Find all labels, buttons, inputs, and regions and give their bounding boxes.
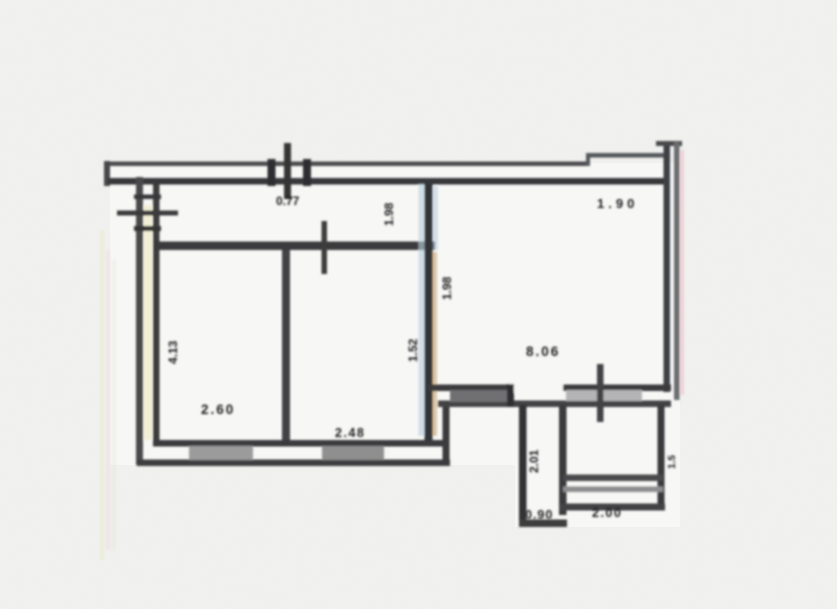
svg-text:8.06: 8.06 [526,344,560,359]
svg-text:1.90: 1.90 [597,196,638,211]
svg-text:1.52: 1.52 [406,338,420,362]
svg-text:2.01: 2.01 [527,449,541,473]
svg-text:2.48: 2.48 [335,426,365,440]
svg-text:2.00: 2.00 [592,506,622,520]
svg-text:4.13: 4.13 [166,340,180,364]
svg-text:0.77: 0.77 [276,194,300,208]
svg-text:0.90: 0.90 [525,508,553,522]
svg-text:2.60: 2.60 [201,402,235,417]
svg-text:1.98: 1.98 [440,276,454,300]
svg-text:1.5: 1.5 [667,455,678,469]
svg-text:1.98: 1.98 [382,202,396,226]
